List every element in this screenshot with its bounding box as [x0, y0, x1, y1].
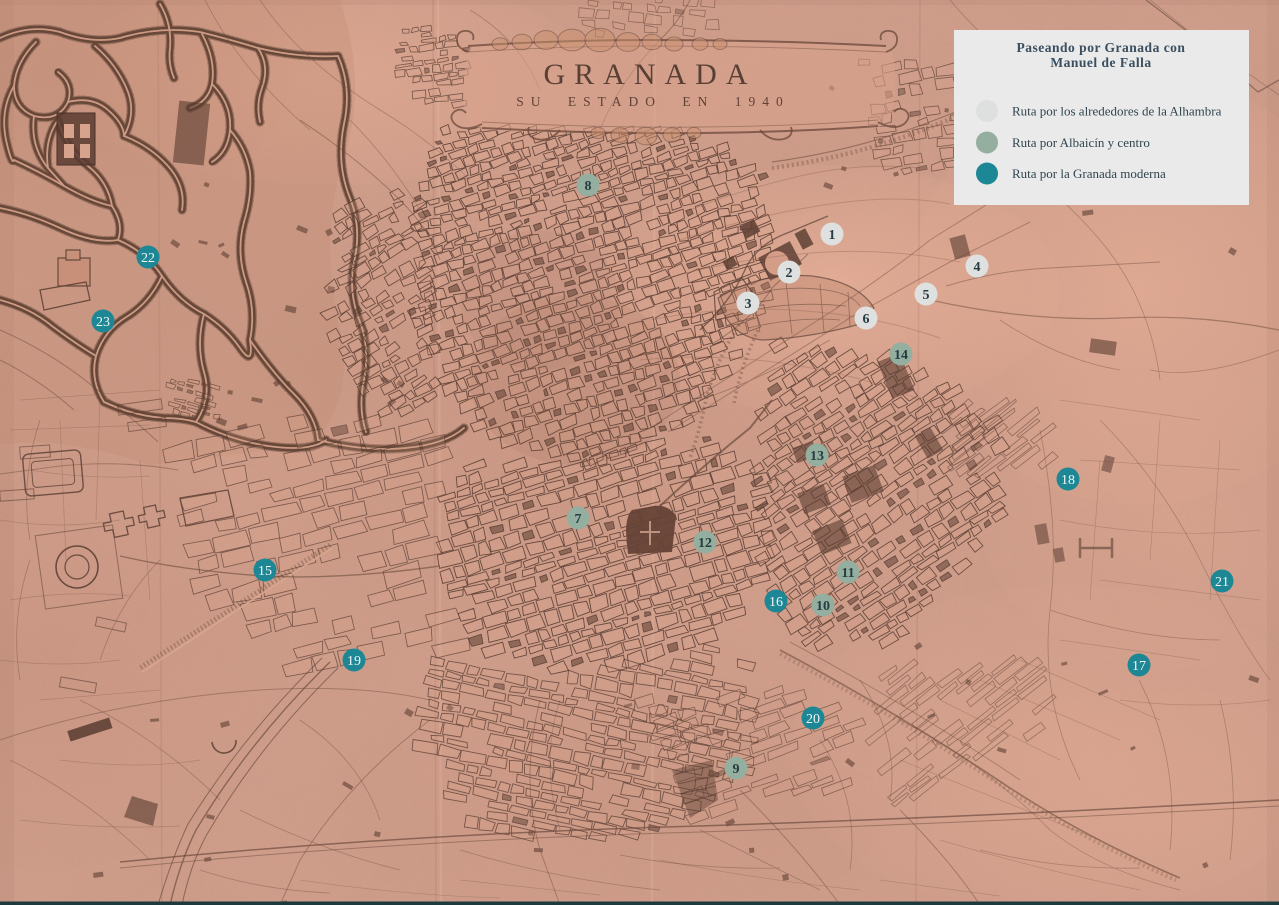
svg-text:23: 23 [96, 315, 110, 330]
svg-text:Paseando por Granada con: Paseando por Granada con [1017, 40, 1186, 55]
svg-text:22: 22 [141, 251, 155, 266]
svg-text:10: 10 [816, 599, 830, 614]
svg-text:17: 17 [1132, 659, 1146, 674]
svg-text:11: 11 [841, 566, 854, 581]
svg-text:18: 18 [1061, 473, 1075, 488]
svg-text:5: 5 [923, 288, 930, 303]
svg-text:13: 13 [810, 449, 824, 464]
svg-text:20: 20 [806, 712, 820, 727]
svg-text:2: 2 [786, 266, 793, 281]
svg-text:14: 14 [894, 348, 908, 363]
svg-text:12: 12 [698, 536, 712, 551]
svg-text:Ruta por los alrededores de la: Ruta por los alrededores de la Alhambra [1012, 104, 1222, 119]
svg-text:19: 19 [347, 654, 361, 669]
svg-text:9: 9 [733, 762, 740, 777]
svg-text:15: 15 [258, 564, 272, 579]
svg-text:16: 16 [769, 595, 783, 610]
svg-text:4: 4 [974, 260, 981, 275]
svg-text:1: 1 [829, 228, 836, 243]
svg-text:6: 6 [863, 312, 870, 327]
svg-text:7: 7 [575, 512, 582, 527]
svg-text:GRANADA: GRANADA [544, 58, 757, 91]
svg-text:21: 21 [1215, 575, 1229, 590]
svg-text:Manuel de Falla: Manuel de Falla [1050, 55, 1151, 70]
svg-text:3: 3 [745, 297, 752, 312]
svg-text:SU ESTADO EN 1940: SU ESTADO EN 1940 [516, 94, 790, 109]
svg-text:Ruta por la Granada moderna: Ruta por la Granada moderna [1012, 166, 1166, 181]
svg-text:8: 8 [585, 179, 592, 194]
svg-text:Ruta por Albaicín y centro: Ruta por Albaicín y centro [1012, 135, 1150, 150]
